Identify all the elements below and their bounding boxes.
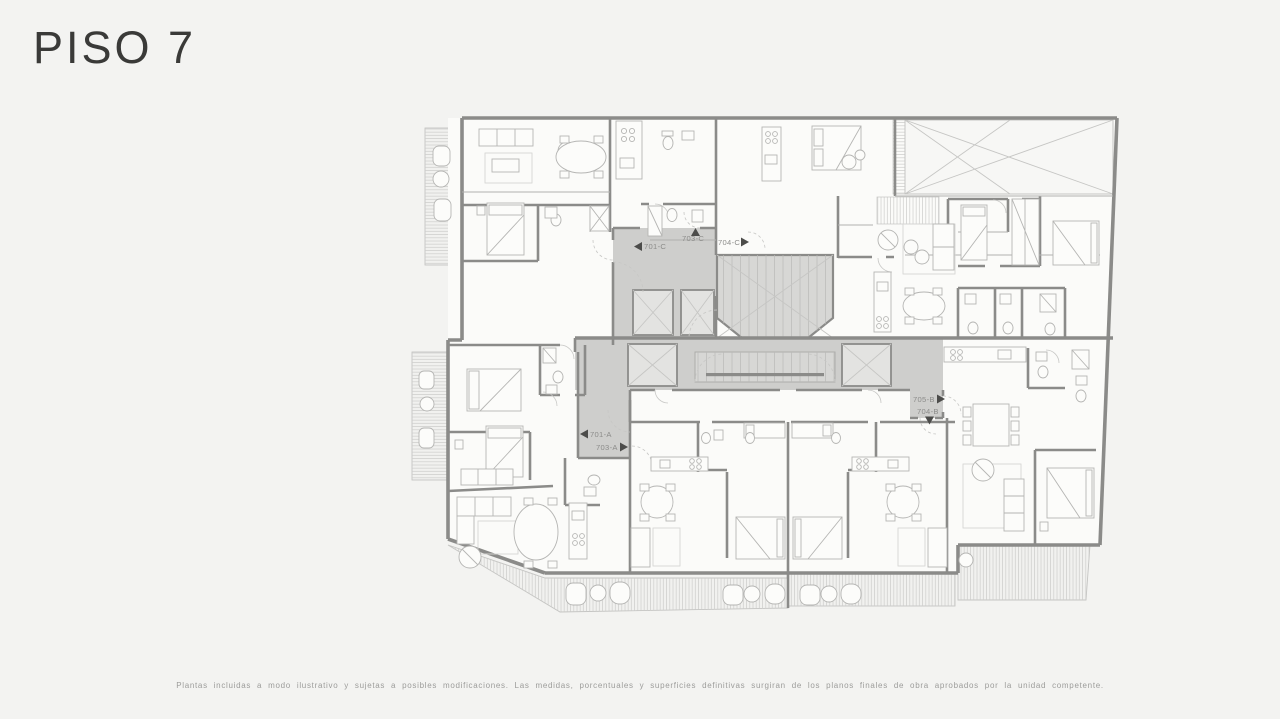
kitchen-counter (616, 121, 642, 179)
toilet (968, 322, 978, 334)
elevator-shaft (633, 290, 673, 335)
stairs (695, 352, 835, 382)
bed (467, 369, 521, 411)
kitchen-counter (874, 272, 891, 332)
unit-label-705-B: 705-B (913, 395, 935, 404)
floor-plan-svg: 701-C 703-C 704-C 701-A 703-A 705-B 704-… (0, 0, 1280, 719)
sink (1036, 352, 1047, 361)
sofa (928, 528, 947, 567)
sofa (461, 469, 513, 485)
dining-table (973, 404, 1009, 446)
toilet (1045, 323, 1055, 335)
disclaimer-text: Plantas incluidas a modo ilustrativo y s… (0, 681, 1280, 690)
sink (584, 487, 596, 496)
side-table (904, 240, 918, 254)
sofa (457, 497, 511, 516)
unit-label-701-A: 701-A (590, 430, 612, 439)
toilet (832, 433, 841, 444)
unit-label-703-A: 703-A (596, 443, 618, 452)
bed (1053, 221, 1099, 265)
slide: PISO 7 (0, 0, 1280, 719)
elevator-shaft (628, 344, 677, 386)
kitchen-furniture (874, 272, 891, 332)
bed (487, 203, 524, 255)
side-table (842, 155, 856, 169)
sink (546, 385, 557, 394)
sink (692, 210, 703, 222)
sofa (1004, 479, 1024, 531)
sink (545, 207, 557, 218)
unit-label-704-B: 704-B (917, 407, 939, 416)
side-table (855, 150, 865, 160)
kitchen-furniture (569, 503, 587, 559)
side-table (1040, 522, 1048, 531)
toilet (663, 137, 673, 150)
toilet (667, 209, 677, 222)
kitchen-island (762, 127, 781, 181)
coffee-table (492, 159, 519, 172)
balcony-deck (958, 545, 1090, 600)
sofa (479, 129, 533, 146)
elevator-shaft (842, 344, 891, 386)
stairs (717, 255, 833, 338)
side-table (457, 516, 474, 544)
side-table (455, 440, 463, 449)
toilet (1076, 390, 1086, 402)
sink (682, 131, 694, 140)
unit-label-701-C: 701-C (644, 242, 666, 251)
bed (1047, 468, 1094, 518)
kitchen-furniture (616, 121, 642, 179)
side-table (915, 250, 929, 264)
bed (736, 517, 785, 559)
vent-strip (877, 197, 939, 224)
sink (714, 430, 723, 440)
toilet (588, 475, 600, 485)
sofa (631, 528, 650, 567)
toilet (702, 433, 711, 444)
sink (1076, 376, 1087, 385)
unit-label-704-C: 704-C (718, 238, 740, 247)
toilet (746, 433, 755, 444)
toilet (553, 371, 563, 383)
bed (793, 517, 842, 559)
dining-table (903, 292, 945, 320)
kitchen-counter (944, 347, 1026, 362)
bed (961, 205, 987, 260)
toilet (1038, 366, 1048, 378)
elevator-shaft (681, 290, 714, 335)
sink (965, 294, 976, 304)
sink (1000, 294, 1011, 304)
dining-table (514, 504, 558, 560)
toilet (1003, 322, 1013, 334)
bedroom-furniture (812, 126, 865, 170)
kitchen-furniture (944, 347, 1026, 362)
side-table (477, 206, 485, 215)
dining-table (556, 141, 606, 173)
